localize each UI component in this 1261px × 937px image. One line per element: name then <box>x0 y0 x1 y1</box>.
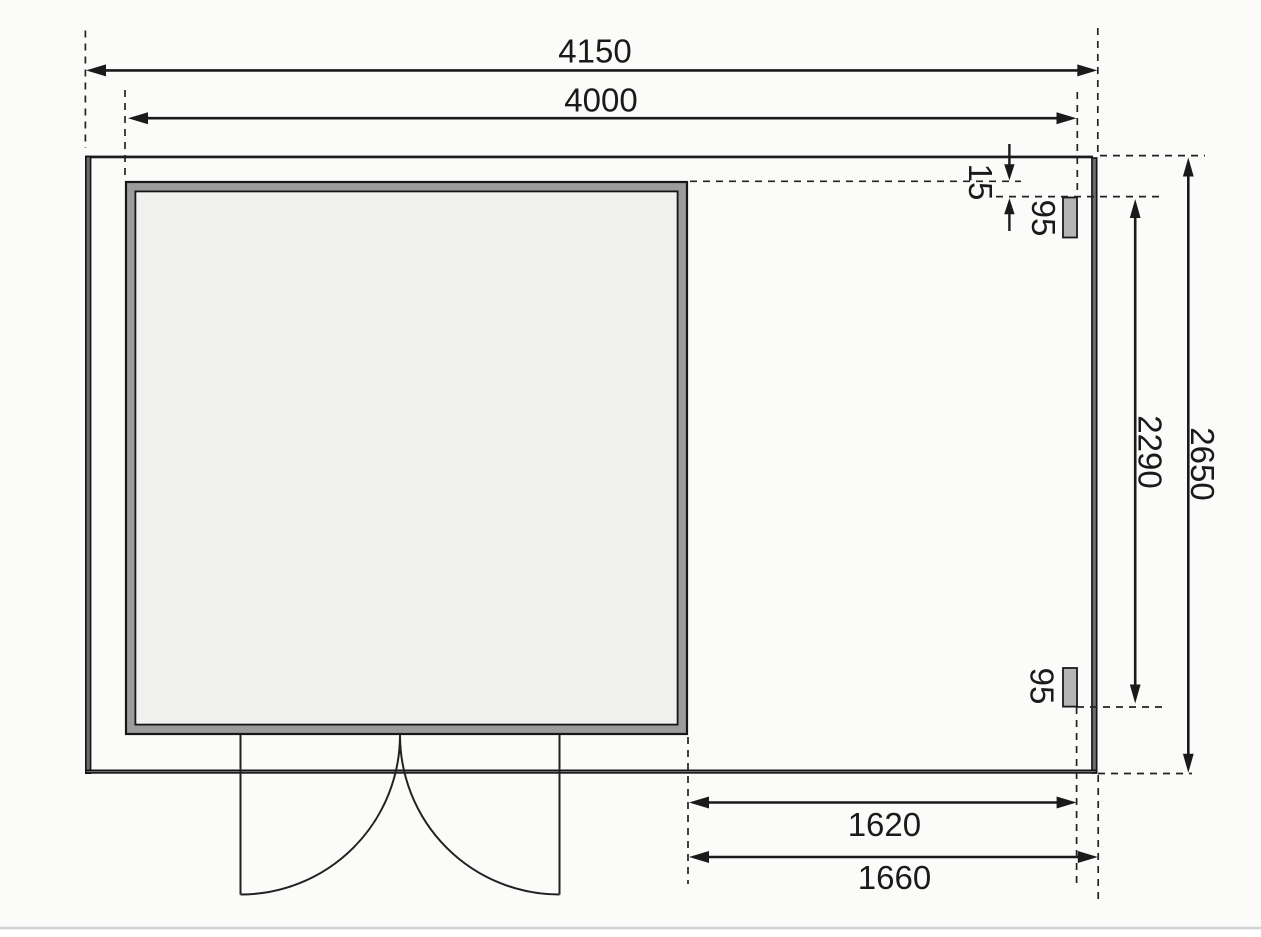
svg-text:2290: 2290 <box>1131 415 1168 488</box>
svg-text:4150: 4150 <box>558 32 631 69</box>
svg-text:15: 15 <box>962 164 999 201</box>
svg-text:1660: 1660 <box>858 859 931 896</box>
svg-text:2650: 2650 <box>1184 427 1221 500</box>
svg-text:4000: 4000 <box>564 81 637 118</box>
svg-text:1620: 1620 <box>848 806 921 843</box>
svg-text:95: 95 <box>1025 200 1062 237</box>
svg-text:95: 95 <box>1024 668 1061 705</box>
